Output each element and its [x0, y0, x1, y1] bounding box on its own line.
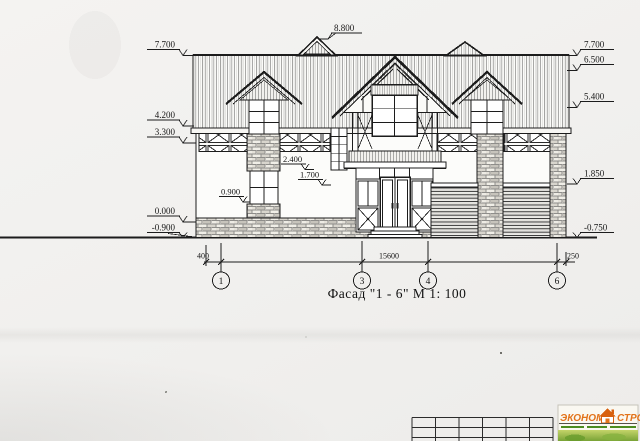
ridge-vent: [298, 37, 336, 56]
elevation-mark: -0.750: [584, 223, 608, 233]
entrance-canopy: [344, 151, 446, 168]
drawing-title: Фасад "1 - 6" М 1: 100: [328, 286, 467, 301]
elevation-mark: -0.900: [152, 223, 176, 233]
elevation-mark: 1.850: [584, 169, 605, 179]
scanned-sheet: 8.800 7.700 4.200 3.300 0.000 -0.900 7.7…: [0, 0, 640, 441]
gate-right: [503, 183, 550, 238]
lintel-hatch: [371, 85, 418, 95]
elevation-mark: 0.000: [155, 206, 176, 216]
entrance-steps: [368, 227, 422, 238]
elevation-mark: 2.400: [283, 154, 302, 164]
elevation-mark: 6.500: [584, 55, 605, 65]
facade-drawing: 8.800 7.700 4.200 3.300 0.000 -0.900 7.7…: [0, 0, 640, 441]
dim-right-offset: 250: [567, 252, 579, 261]
elevation-mark-top: 8.800: [334, 23, 355, 33]
door-handle: [392, 203, 394, 209]
elevation-mark: 0.900: [221, 187, 240, 197]
dim-total: 15600: [379, 252, 399, 261]
title-block-table: [412, 418, 553, 441]
logo-word-2: СТРОЙ: [617, 411, 640, 424]
dimension-line: 400 15600 250: [197, 241, 579, 272]
door-handle: [396, 203, 398, 209]
elevation-mark: 1.700: [300, 170, 319, 180]
elevation-mark: 3.300: [155, 127, 176, 137]
roof-ridge-bump: [446, 42, 484, 56]
axis-label: 6: [555, 277, 560, 287]
axis-label: 1: [219, 277, 224, 287]
entrance: [356, 168, 433, 232]
elevation-mark: 5.400: [584, 92, 605, 102]
elevation-mark: 7.700: [155, 40, 176, 50]
stone-column: [477, 134, 503, 238]
stone-pier: [247, 204, 280, 218]
logo-word-1: ЭКОНОМ: [560, 413, 605, 424]
elevation-mark: 4.200: [155, 110, 176, 120]
stone-pier: [247, 134, 280, 171]
gate-left: [431, 183, 478, 238]
stone-corner-column: [550, 134, 566, 238]
dim-left-offset: 400: [197, 252, 209, 261]
company-logo: ЭКОНОМ СТРОЙ: [558, 405, 640, 441]
elevation-mark: 7.700: [584, 40, 605, 50]
building-facade: [191, 37, 571, 238]
